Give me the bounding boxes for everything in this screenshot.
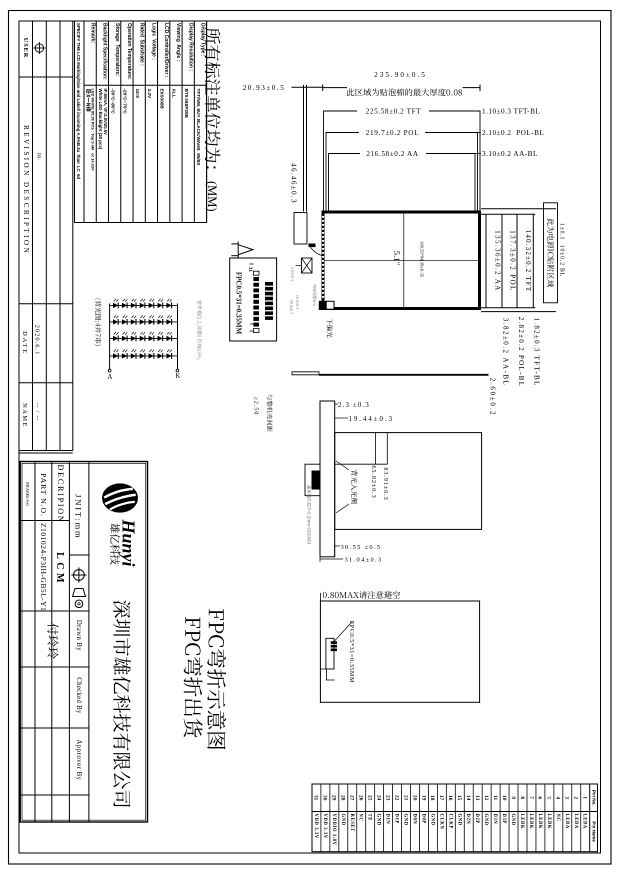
svg-text:24: 24: [375, 795, 381, 801]
svg-text:225.58±0.2 TFT: 225.58±0.2 TFT: [366, 108, 422, 116]
svg-text:NC: NC: [358, 814, 363, 822]
svg-text:LEDK: LEDK: [546, 814, 551, 830]
svg-text:D3P: D3P: [501, 814, 506, 824]
svg-text:20: 20: [411, 795, 417, 801]
svg-text:22: 22: [393, 795, 399, 801]
svg-text:RESET: RESET: [349, 814, 354, 833]
svg-text:12: 12: [483, 795, 489, 801]
svg-text:31: 31: [313, 795, 319, 801]
svg-text:-20°C~70°C: -20°C~70°C: [123, 89, 128, 115]
svg-text:VDD 3.3V: VDD 3.3V: [313, 814, 318, 839]
svg-text:USER: USER: [22, 38, 29, 59]
svg-text:-- / --: -- / --: [34, 403, 40, 421]
svg-text:8: 8: [519, 796, 525, 799]
svg-text:3.10±0.2 AA-BL: 3.10±0.2 AA-BL: [482, 150, 538, 158]
svg-text:Pin No.: Pin No.: [591, 790, 596, 806]
svg-text:2.60±0.2: 2.60±0.2: [488, 378, 496, 416]
svg-text:Z101024-P3IH-GB5L-Y1: Z101024-P3IH-GB5L-Y1: [39, 523, 48, 611]
svg-text:GND: GND: [376, 814, 381, 826]
svg-text:20.93±0.5: 20.93±0.5: [243, 84, 286, 92]
svg-text:11: 11: [492, 795, 498, 800]
svg-text:18-: 18-: [36, 152, 42, 160]
svg-text:28: 28: [340, 795, 346, 801]
svg-text:D0N: D0N: [411, 814, 416, 825]
svg-text:≥2.50: ≥2.50: [253, 397, 259, 416]
svg-text:Logic Voltage :: Logic Voltage :: [151, 23, 157, 60]
svg-text:31.04±0.3: 31.04±0.3: [345, 557, 383, 564]
svg-text:14: 14: [465, 795, 471, 801]
svg-text:1.10±0.3 TFT-BL: 1.10±0.3 TFT-BL: [482, 108, 540, 116]
svg-text:GND: GND: [483, 814, 488, 826]
svg-text:LEDA: LEDA: [582, 814, 587, 829]
svg-text:LEDK: LEDK: [537, 814, 542, 830]
svg-text:Hunyi: Hunyi: [119, 518, 139, 566]
svg-text:27: 27: [349, 795, 355, 801]
svg-text:23: 23: [384, 795, 390, 801]
svg-text:13: 13: [474, 795, 480, 801]
svg-text:D1P: D1P: [394, 814, 399, 824]
svg-text:GND: GND: [429, 814, 434, 826]
svg-text:Pin Name: Pin Name: [591, 821, 596, 842]
svg-text:46.46±0.3: 46.46±0.3: [290, 163, 298, 204]
svg-text:FPC0.5*31=0.35MM: FPC0.5*31=0.35MM: [348, 621, 355, 683]
svg-text:135.36±0.2 AA: 135.36±0.2 AA: [493, 230, 501, 292]
svg-text:16.4±0.3: 16.4±0.3: [289, 300, 294, 314]
svg-text:16:9: 16:9: [135, 89, 140, 99]
svg-text:CLKP: CLKP: [447, 814, 452, 829]
svg-text:26: 26: [358, 795, 364, 801]
svg-text:K: K: [175, 373, 180, 380]
svg-text:10: 10: [501, 795, 507, 801]
svg-text:Operation Temperature:: Operation Temperature:: [126, 23, 132, 80]
svg-text:D2N: D2N: [465, 814, 470, 825]
svg-text:LCD Controller/Driver :: LCD Controller/Driver :: [163, 23, 169, 78]
svg-text:GND: GND: [510, 814, 515, 826]
svg-text:LEDK: LEDK: [528, 814, 533, 830]
svg-text:-30°C~80°C: -30°C~80°C: [110, 89, 115, 115]
svg-text:1±0.1 10±0.2 BL: 1±0.1 10±0.2 BL: [559, 223, 565, 277]
svg-text:Display Type :: Display Type :: [200, 23, 206, 57]
svg-text:NAME: NAME: [21, 403, 28, 428]
svg-text:140.32±0.2 TFT: 140.32±0.2 TFT: [524, 230, 532, 293]
svg-text:137.3±0.2 POL: 137.3±0.2 POL: [509, 230, 517, 292]
svg-text:Rated Substrate :: Rated Substrate :: [138, 23, 144, 66]
svg-text:DECRIPION: DECRIPION: [56, 465, 65, 524]
svg-text:12.0±0.3: 12.0±0.3: [295, 295, 300, 309]
svg-text:VDDIO 1.8V: VDDIO 1.8V: [331, 814, 336, 846]
svg-text:DATE: DATE: [21, 331, 28, 355]
svg-text:LED WHITE 85.38 PCS : Top:3.4M: LED WHITE 85.38 PCS : Top:3.4M or 14.03V: [91, 89, 96, 171]
svg-text:7: 7: [528, 796, 534, 799]
svg-text:21: 21: [402, 795, 408, 801]
svg-text:Storage Temperature:: Storage Temperature:: [114, 23, 120, 76]
svg-text:BT5:/B8P28B: BT5:/B8P28B: [184, 89, 189, 119]
svg-text:SPECIFY THE LCD Marking/Size a: SPECIFY THE LCD Marking/Size and Label/ …: [76, 23, 81, 180]
svg-text:30: 30: [322, 795, 328, 801]
svg-text:REVISION DESCRIPTION: REVISION DESCRIPTION: [22, 125, 30, 255]
svg-text:EK9308B: EK9308B: [159, 89, 164, 110]
svg-text:15: 15: [456, 795, 462, 801]
svg-text:GND: GND: [403, 814, 408, 826]
svg-text:CLKN: CLKN: [438, 814, 443, 830]
svg-text:235.90±0.5: 235.90±0.5: [374, 71, 427, 79]
svg-text:Drawn By: Drawn By: [75, 620, 82, 652]
svg-text:FPC0.5*31=0.35MM: FPC0.5*31=0.35MM: [234, 272, 242, 335]
svg-text:Backlight Specification:: Backlight Specification:: [102, 23, 108, 80]
svg-text:1: 1: [582, 796, 588, 799]
svg-text:19.44±0.3: 19.44±0.3: [349, 416, 395, 423]
svg-text:LEDA: LEDA: [564, 814, 569, 829]
svg-text:Remark:: Remark:: [89, 23, 95, 43]
svg-text:219.7±0.2 POL: 219.7±0.2 POL: [366, 129, 420, 137]
svg-text:Viewing Angle :: Viewing Angle :: [175, 23, 181, 62]
svg-text:LCM: LCM: [54, 552, 65, 586]
svg-text:30.55 ±0.5: 30.55 ±0.5: [341, 544, 382, 551]
svg-text:9: 9: [510, 796, 516, 799]
svg-text:5.1″: 5.1″: [392, 251, 402, 266]
svg-text:3.82±0.2 AA-BL: 3.82±0.2 AA-BL: [501, 318, 509, 387]
svg-text:16: 16: [447, 795, 453, 801]
svg-text:29: 29: [331, 795, 337, 801]
svg-text:(MM): (MM): [205, 181, 219, 212]
svg-text:JNIT:mm: JNIT:mm: [74, 494, 84, 539]
svg-text:D0P: D0P: [420, 814, 425, 824]
svg-text:2.10±0.2 POL-BL: 2.10±0.2 POL-BL: [482, 129, 544, 137]
svg-text:D3N: D3N: [492, 814, 497, 825]
svg-text:VDD 3.3V: VDD 3.3V: [322, 814, 327, 839]
svg-text:FRAME:S-0: FRAME:S-0: [25, 482, 30, 506]
svg-text:18: 18: [429, 795, 435, 801]
svg-text:6: 6: [537, 796, 543, 799]
svg-text:TFT/NW, 6UY BLACK/WAHS 85/8X: TFT/NW, 6UY BLACK/WAHS 85/8X: [196, 89, 201, 167]
svg-text:19: 19: [420, 795, 426, 801]
svg-text:LEDK: LEDK: [519, 814, 524, 830]
svg-text:ALL: ALL: [172, 89, 177, 98]
svg-text:D2P: D2P: [474, 814, 479, 824]
svg-text:31: 31: [247, 267, 253, 273]
svg-text:Display Resolution :: Display Resolution :: [187, 23, 193, 71]
svg-text:White LED Backlight (28 pcs): White LED Backlight (28 pcs): [98, 89, 103, 150]
svg-text:2.3 ±0.3: 2.3 ±0.3: [338, 402, 370, 409]
svg-text:2.05±0.3: 2.05±0.3: [290, 267, 295, 281]
svg-text:GND: GND: [340, 814, 345, 826]
svg-text:160.55*94.39±0.35: 160.55*94.39±0.35: [420, 241, 425, 278]
svg-text:PART N.O.: PART N.O.: [39, 473, 48, 517]
svg-text:2: 2: [573, 796, 579, 799]
svg-text:Approver By: Approver By: [75, 739, 82, 780]
svg-text:A: A: [108, 374, 113, 381]
svg-text:5: 5: [546, 796, 552, 799]
svg-text:IF:80mA, VF:2.8V/20.5V: IF:80mA, VF:2.8V/20.5V: [103, 89, 108, 136]
svg-text:LEDA: LEDA: [573, 814, 578, 829]
svg-text:3.3V: 3.3V: [147, 89, 152, 100]
svg-text:1.82±0.3 TFT-BL: 1.82±0.3 TFT-BL: [532, 317, 540, 386]
svg-text:2020.6.1: 2020.6.1: [34, 325, 41, 356]
svg-text:65.82±0.3: 65.82±0.3: [370, 465, 377, 498]
svg-text:GND: GND: [456, 814, 461, 826]
svg-text:D1N: D1N: [385, 814, 390, 825]
svg-text:25: 25: [366, 795, 372, 801]
svg-text:4: 4: [555, 796, 561, 799]
svg-text:3: 3: [564, 796, 570, 799]
svg-text:2.82±0.2 POL-BL: 2.82±0.2 POL-BL: [517, 317, 525, 388]
svg-text:Checked By: Checked By: [75, 677, 82, 714]
svg-text:216.58±0.2 AA: 216.58±0.2 AA: [366, 150, 418, 158]
svg-text:NC: NC: [555, 814, 560, 822]
svg-text:TE: TE: [367, 814, 372, 821]
svg-text:83.91±0.3: 83.91±0.3: [382, 467, 389, 500]
svg-text:17: 17: [438, 795, 444, 801]
